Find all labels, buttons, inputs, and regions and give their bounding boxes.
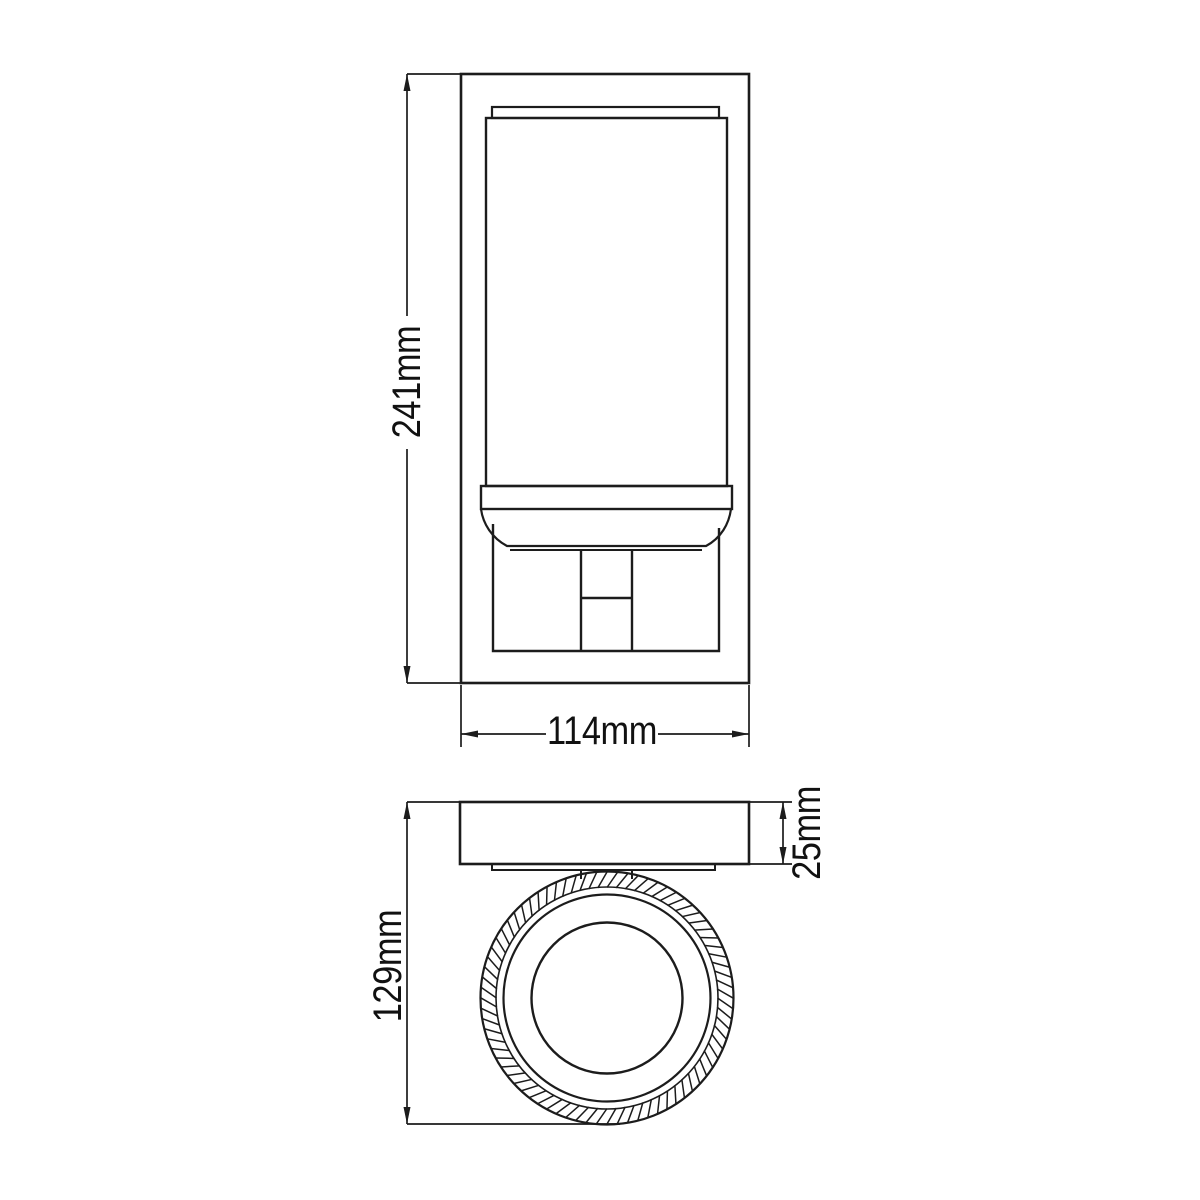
- knurl-tick: [507, 920, 514, 937]
- holder-opening-circle: [532, 923, 683, 1074]
- knurl-tick: [658, 1095, 660, 1114]
- knurl-tick: [708, 954, 727, 958]
- technical-drawing-canvas: 241mm 114mm 129mm 25mm: [0, 0, 1200, 1200]
- knurl-tick: [598, 872, 607, 888]
- knurl-tick: [496, 938, 506, 954]
- front-view: [461, 74, 749, 683]
- knurl-tick: [529, 1091, 546, 1098]
- knurl-tick: [607, 872, 618, 888]
- knurl-tick: [716, 980, 733, 988]
- knurl-tick: [491, 1049, 510, 1051]
- dimension-label-plate-thickness: 25mm: [787, 786, 827, 880]
- knurl-tick: [481, 1008, 498, 1016]
- knurl-tick: [596, 1109, 607, 1125]
- knurl-tick: [491, 947, 502, 962]
- arrowhead-down-icon: [404, 666, 411, 683]
- knurl-tick: [694, 929, 713, 930]
- knurl-tick: [589, 872, 597, 889]
- bracket-body: [493, 524, 719, 651]
- top-view: [460, 802, 749, 1125]
- knurl-tick: [648, 1099, 652, 1118]
- knurl-tick: [481, 998, 497, 1007]
- knurl-tick: [704, 945, 723, 947]
- knurl-tick: [634, 878, 648, 890]
- knurl-tick: [675, 905, 693, 911]
- knurl-tick: [682, 1079, 685, 1098]
- glass-top-lip: [492, 107, 719, 118]
- knurl-tick: [522, 905, 526, 923]
- knurl-tick: [556, 1103, 571, 1114]
- knurl-tick: [576, 1107, 589, 1121]
- dimension-label-width: 114mm: [547, 711, 657, 751]
- arrowhead-right-icon: [732, 731, 749, 738]
- knurl-tick: [617, 1107, 625, 1124]
- dimension-label-depth: 129mm: [368, 910, 408, 1023]
- knurl-tick: [718, 998, 734, 1009]
- drawing-svg: [0, 0, 1200, 1200]
- wall-plate: [460, 802, 749, 864]
- knurl-tick: [667, 898, 684, 905]
- knurl-tick: [700, 1058, 707, 1075]
- knurl-tick: [717, 989, 733, 998]
- knurl-tick: [530, 898, 533, 917]
- knurl-tick: [712, 1034, 723, 1049]
- knurl-tick: [714, 971, 732, 978]
- cove-molding: [481, 509, 731, 546]
- knurl-tick: [717, 1007, 732, 1019]
- knurl-tick: [566, 1105, 580, 1117]
- knurl-tick: [716, 1016, 730, 1029]
- knurl-tick: [688, 1073, 692, 1091]
- knurl-tick: [538, 1095, 555, 1104]
- knurl-tick: [714, 1025, 726, 1039]
- knurl-tick: [643, 882, 658, 893]
- mount-stem: [581, 550, 632, 651]
- knurl-tick: [482, 977, 497, 989]
- knurl-tick: [628, 1105, 635, 1123]
- knurl-tick: [487, 957, 499, 971]
- frame-outline: [461, 74, 749, 683]
- knurl-tick: [501, 1066, 520, 1067]
- glass-shade: [486, 118, 727, 486]
- knurl-tick: [501, 929, 510, 946]
- knurl-tick: [682, 913, 700, 917]
- arrowhead-up-icon: [404, 74, 411, 91]
- knurl-inner-circle: [496, 887, 718, 1109]
- ring-inner-wall-circle: [504, 895, 711, 1102]
- knurl-tick: [484, 967, 498, 980]
- knurl-tick: [507, 1073, 526, 1076]
- dimension-label-height: 241mm: [387, 326, 427, 439]
- knurl-tick: [521, 1085, 539, 1091]
- arrowhead-left-icon: [461, 731, 478, 738]
- knurl-tick: [675, 1085, 676, 1104]
- knurl-tick: [514, 912, 520, 930]
- knurl-tick: [481, 987, 497, 998]
- knurl-tick: [487, 1039, 506, 1043]
- knurl-tick: [651, 887, 667, 897]
- knurl-tick: [514, 1079, 532, 1083]
- collar: [481, 486, 732, 509]
- knurl-tick: [704, 1051, 713, 1068]
- knurl-tick: [688, 921, 707, 924]
- knurl-tick: [586, 1108, 598, 1123]
- knurl-hatching: [481, 872, 734, 1125]
- knurl-tick: [563, 878, 567, 897]
- knurl-tick: [547, 1099, 563, 1109]
- knurl-tick: [694, 1066, 700, 1084]
- ring-outer-circle: [481, 872, 734, 1125]
- knurl-tick: [607, 1108, 616, 1124]
- arrowhead-down-icon: [404, 1107, 411, 1124]
- knurl-tick: [708, 1042, 718, 1058]
- knurl-tick: [538, 892, 539, 911]
- knurl-tick: [660, 892, 677, 901]
- arrowhead-up-icon: [404, 802, 411, 819]
- knurl-tick: [482, 1019, 500, 1026]
- dimension-depth: [404, 802, 621, 1124]
- knurl-tick: [616, 873, 628, 888]
- knurl-tick: [554, 882, 556, 901]
